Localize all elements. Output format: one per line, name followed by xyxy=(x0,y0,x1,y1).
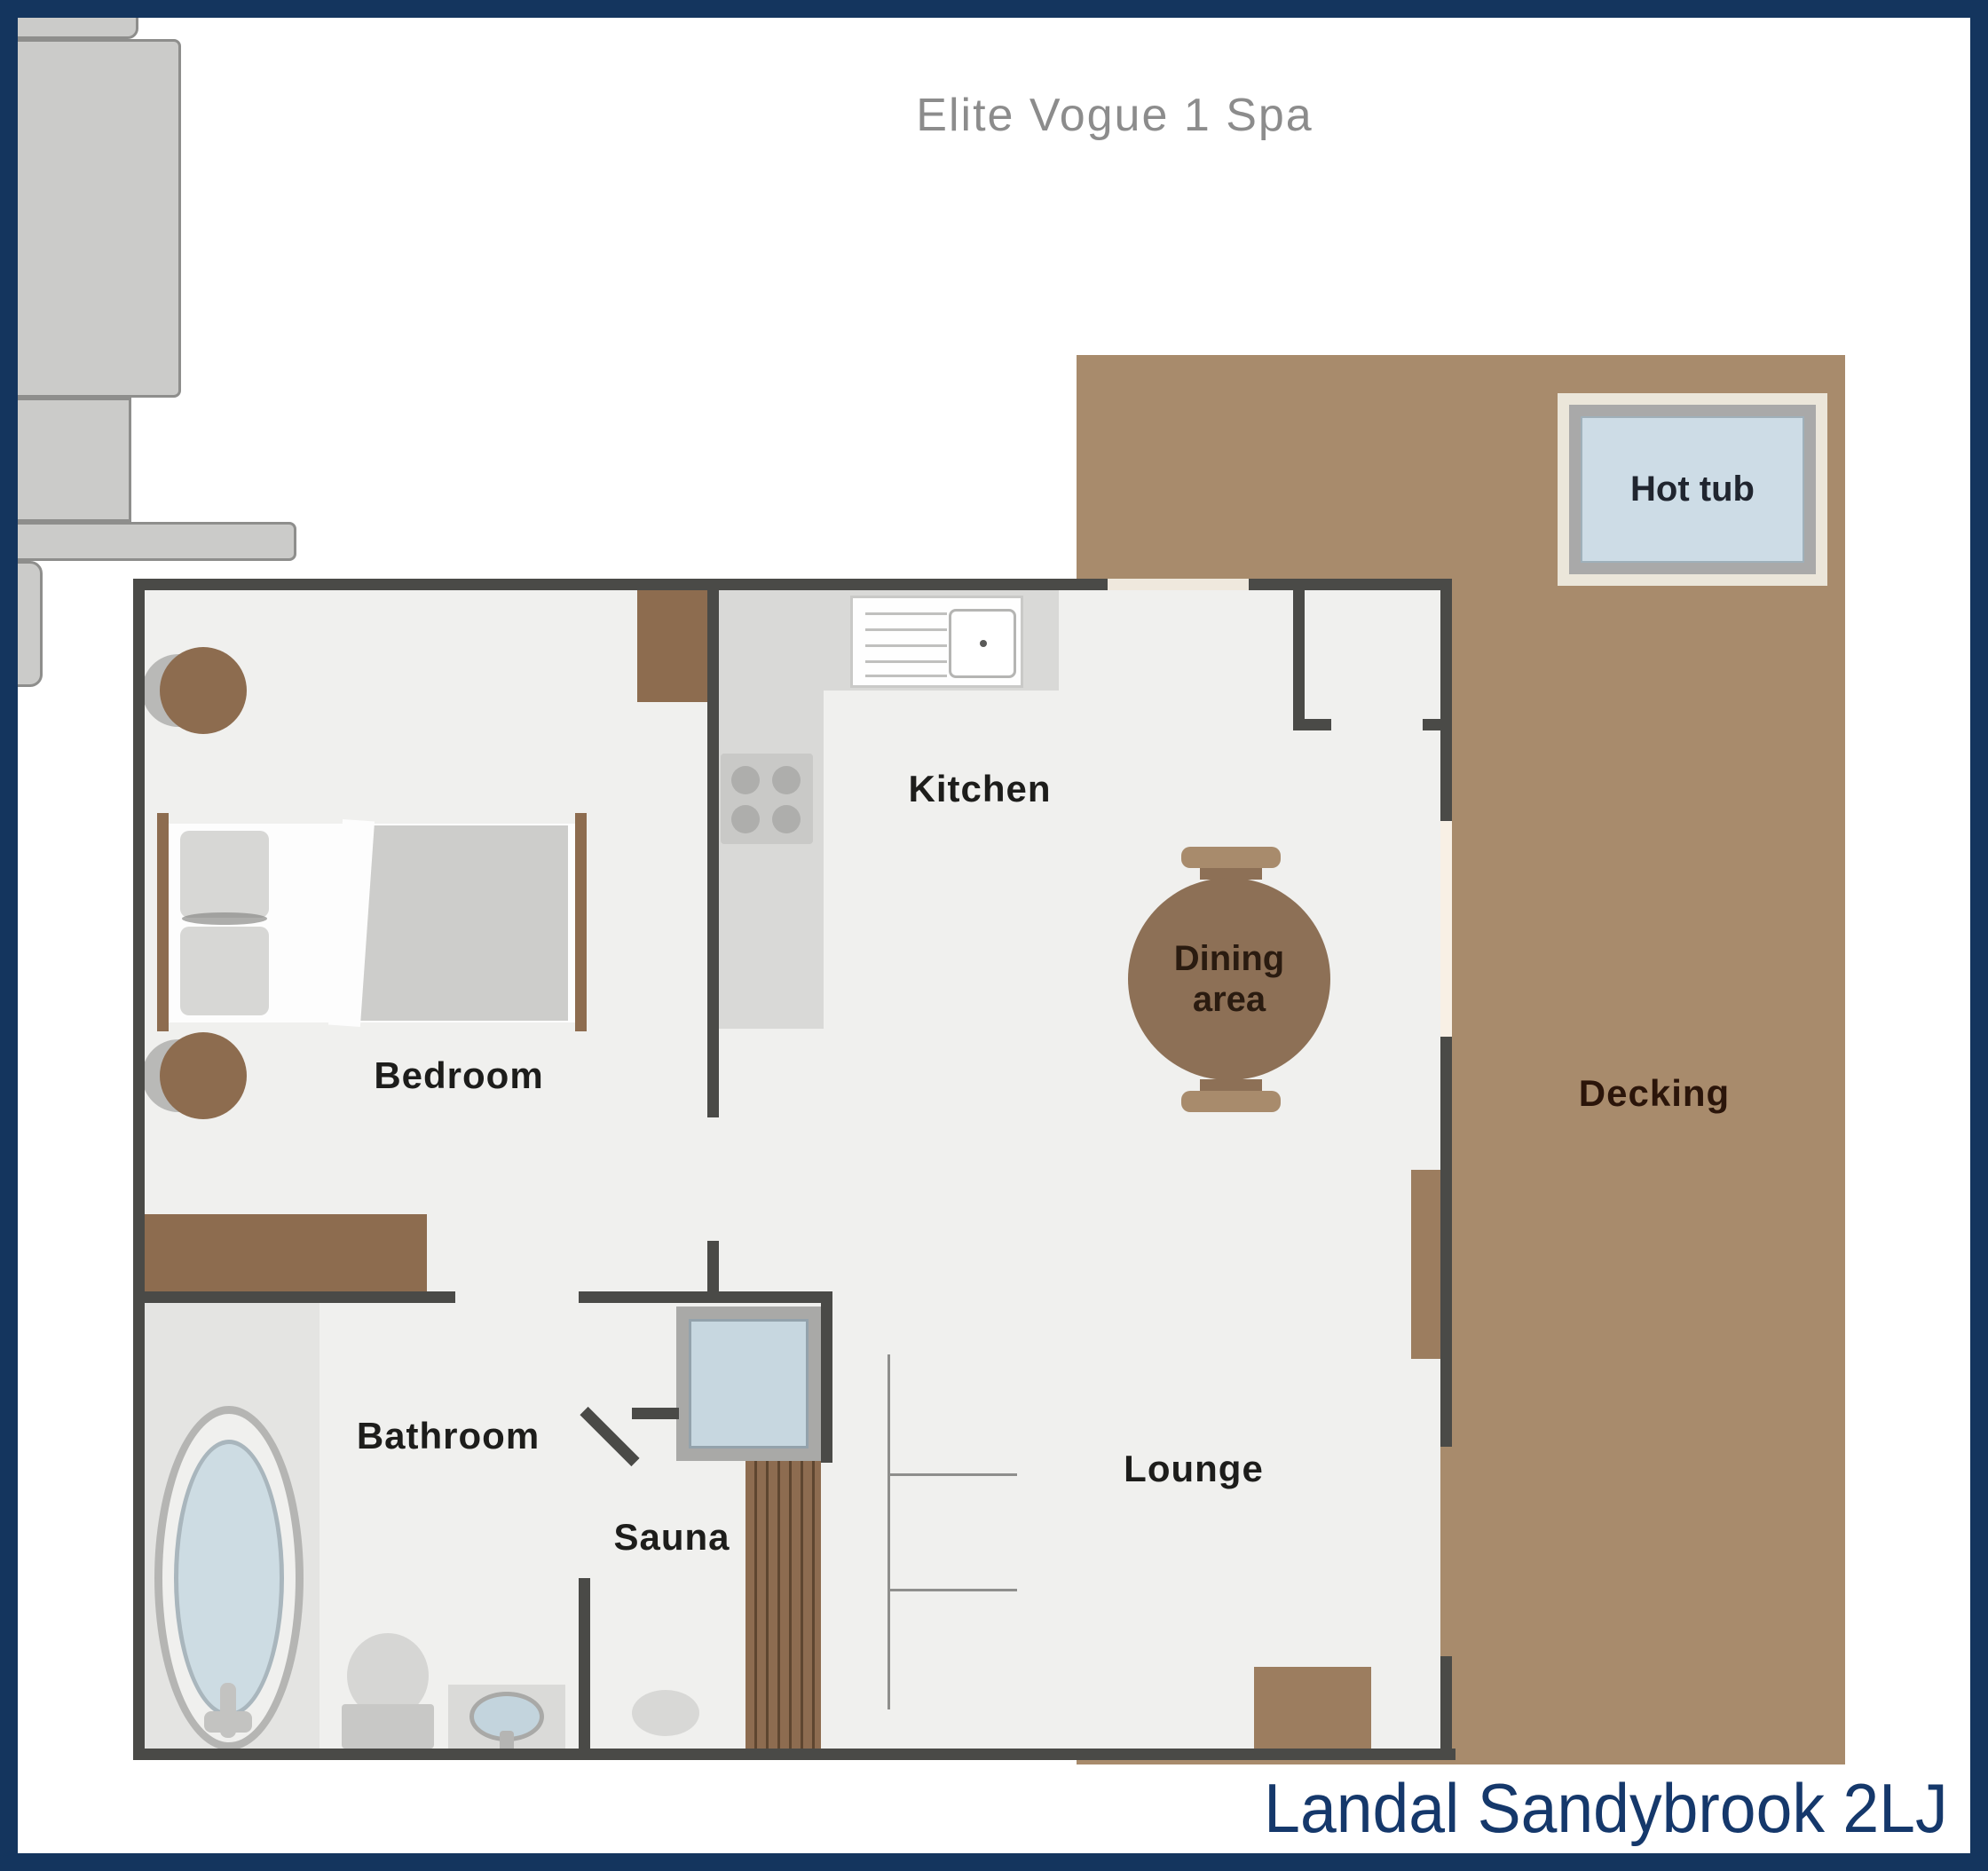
burner xyxy=(772,766,801,794)
entry-stub-wall xyxy=(1293,590,1305,730)
drainer-line xyxy=(865,628,947,631)
drainer-line xyxy=(865,660,947,663)
wall-right-lower xyxy=(1440,1656,1452,1749)
wall-right-upper xyxy=(1440,590,1452,821)
kitchen-sink-unit xyxy=(850,596,1023,688)
sliding-door-right xyxy=(1440,821,1452,1037)
entry-stub-foot xyxy=(1305,719,1331,730)
sauna-rug xyxy=(632,1690,699,1736)
bed-head-rail xyxy=(157,813,169,1031)
bedroom-label: Bedroom xyxy=(374,1054,543,1097)
bathtub-water xyxy=(174,1440,284,1717)
bathroom-label: Bathroom xyxy=(357,1415,540,1457)
footer-caption: Landal Sandybrook 2LJ xyxy=(1265,1768,1948,1849)
sofa-bottom-section xyxy=(0,398,131,522)
lounge-label: Lounge xyxy=(1124,1448,1264,1490)
sauna-label: Sauna xyxy=(613,1516,730,1559)
bedroom-dresser xyxy=(145,1214,427,1292)
sauna-chamfer-top xyxy=(632,1408,679,1419)
drainer-line xyxy=(865,644,947,647)
wall-right-middle xyxy=(1440,1037,1452,1447)
sink-basin xyxy=(949,609,1016,678)
sofa-armrest xyxy=(0,561,43,687)
sofa-headrest xyxy=(0,0,138,39)
duvet xyxy=(353,825,568,1021)
bathroom-wall-right xyxy=(579,1291,832,1303)
wall-top-left xyxy=(133,579,1108,590)
bedside-stool-bottom xyxy=(160,1032,247,1119)
bedroom-kitchen-wall xyxy=(707,590,719,1117)
bedroom-door-stub xyxy=(707,1241,719,1298)
sauna-wood-slats xyxy=(745,1460,821,1749)
decking-label: Decking xyxy=(1579,1072,1730,1115)
sofa-left-section xyxy=(0,39,181,398)
bathroom-wall-left xyxy=(145,1291,455,1303)
hot-tub-water: Hot tub xyxy=(1581,416,1804,563)
bathtub-faucet-base xyxy=(204,1711,252,1733)
dining-bench-top xyxy=(1181,847,1281,868)
bedside-stool-top xyxy=(160,647,247,734)
floorplan-page: Elite Vogue 1 Spa Decking Hot tub xyxy=(0,0,1988,1871)
wall-top-right xyxy=(1249,579,1452,590)
wall-bottom xyxy=(133,1749,1455,1760)
sauna-window-frame xyxy=(676,1307,821,1461)
hot-tub: Hot tub xyxy=(1558,393,1827,586)
sauna-left-wall xyxy=(579,1578,590,1749)
drainer-line xyxy=(865,675,947,677)
burner xyxy=(731,805,760,833)
lounge-wall-panel xyxy=(1411,1170,1440,1359)
dining-label-line1: Dining xyxy=(1174,938,1284,979)
sink-drain xyxy=(980,640,987,647)
dining-table: Dining area xyxy=(1128,878,1330,1080)
patio-door-opening xyxy=(1108,579,1249,590)
wall-left xyxy=(133,579,145,1760)
toilet-tank xyxy=(342,1704,434,1749)
burner xyxy=(731,766,760,794)
stove xyxy=(721,754,813,844)
sofa-divider xyxy=(890,1589,1017,1591)
sauna-right-wall xyxy=(821,1303,832,1463)
dining-bench-bottom xyxy=(1181,1091,1281,1112)
wardrobe xyxy=(637,590,708,702)
kitchen-label: Kitchen xyxy=(908,768,1051,810)
hot-tub-frame: Hot tub xyxy=(1569,405,1816,574)
sofa-divider xyxy=(890,1473,1017,1476)
wall-tick-right xyxy=(1423,719,1440,730)
pillow-shadow xyxy=(182,912,267,925)
bed-foot-rail xyxy=(575,813,587,1031)
pillow-bottom xyxy=(180,927,269,1015)
lounge-side-table xyxy=(1254,1667,1371,1750)
hot-tub-label: Hot tub xyxy=(1630,470,1755,509)
dining-label-line2: area xyxy=(1193,979,1266,1020)
drainer-line xyxy=(865,612,947,615)
burner xyxy=(772,805,801,833)
pillow-top xyxy=(180,831,269,918)
sofa-divider xyxy=(887,1354,890,1709)
dining-bench-bottom-tab xyxy=(1200,1079,1262,1091)
sauna-window-glass xyxy=(689,1319,809,1449)
sofa-base xyxy=(0,522,296,561)
page-title: Elite Vogue 1 Spa xyxy=(916,89,1313,142)
